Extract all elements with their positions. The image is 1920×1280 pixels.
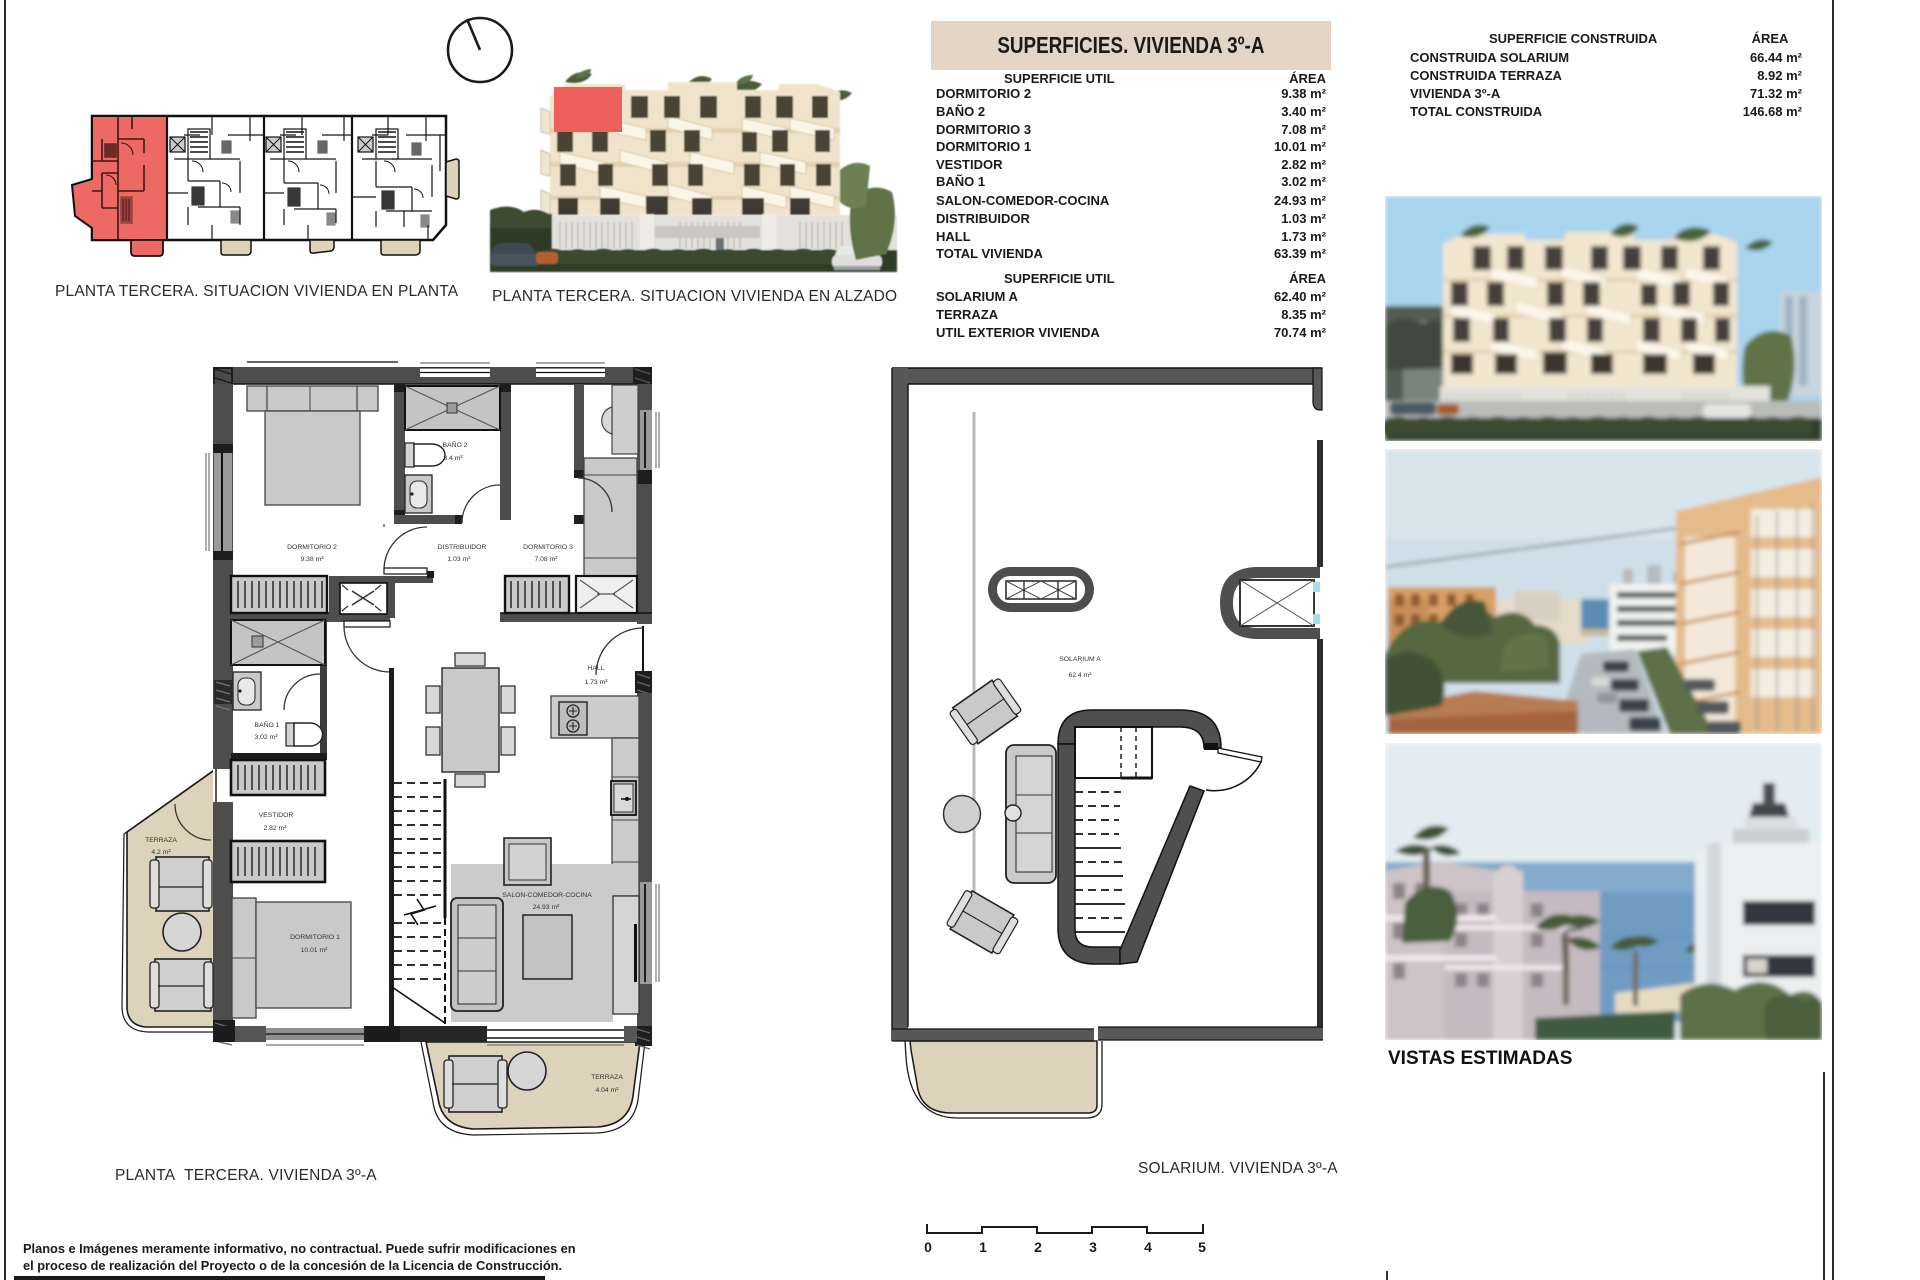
svg-text:4.2 m²: 4.2 m²: [151, 849, 171, 856]
svg-text:SOLARIUM A: SOLARIUM A: [1059, 656, 1101, 663]
svg-text:DISTRIBUIDOR: DISTRIBUIDOR: [438, 544, 487, 551]
svg-text:SALON-COMEDOR-COCINA: SALON-COMEDOR-COCINA: [502, 892, 592, 899]
svg-text:HALL: HALL: [587, 665, 604, 672]
svg-text:0: 0: [924, 1239, 932, 1255]
svg-text:3: 3: [1089, 1239, 1097, 1255]
svg-text:2.82 m²: 2.82 m²: [263, 825, 287, 832]
svg-text:10.01 m²: 10.01 m²: [301, 947, 329, 954]
svg-text:TERRAZA: TERRAZA: [145, 837, 177, 844]
svg-text:DORMITORIO 2: DORMITORIO 2: [287, 544, 337, 551]
svg-text:62.4 m²: 62.4 m²: [1068, 672, 1092, 679]
svg-text:24.93 m²: 24.93 m²: [533, 904, 561, 911]
svg-text:TERRAZA: TERRAZA: [591, 1074, 623, 1081]
svg-text:1.73 m²: 1.73 m²: [584, 679, 608, 686]
svg-text:3.4 m²: 3.4 m²: [443, 455, 463, 462]
svg-text:BAÑO 2: BAÑO 2: [443, 440, 468, 449]
svg-text:5: 5: [1198, 1239, 1206, 1255]
svg-text:VESTIDOR: VESTIDOR: [259, 812, 294, 819]
svg-text:4.04 m²: 4.04 m²: [595, 1087, 619, 1094]
svg-text:1.03 m²: 1.03 m²: [447, 556, 471, 563]
svg-text:2: 2: [1034, 1239, 1042, 1255]
svg-text:4: 4: [1144, 1239, 1152, 1255]
svg-text:9.38 m²: 9.38 m²: [300, 556, 324, 563]
svg-text:7.08 m²: 7.08 m²: [534, 556, 558, 563]
svg-text:DORMITORIO 1: DORMITORIO 1: [290, 934, 340, 941]
svg-text:DORMITORIO 3: DORMITORIO 3: [523, 544, 573, 551]
svg-text:3.02 m²: 3.02 m²: [254, 734, 278, 741]
svg-text:BAÑO 1: BAÑO 1: [255, 720, 280, 729]
svg-text:1: 1: [979, 1239, 987, 1255]
